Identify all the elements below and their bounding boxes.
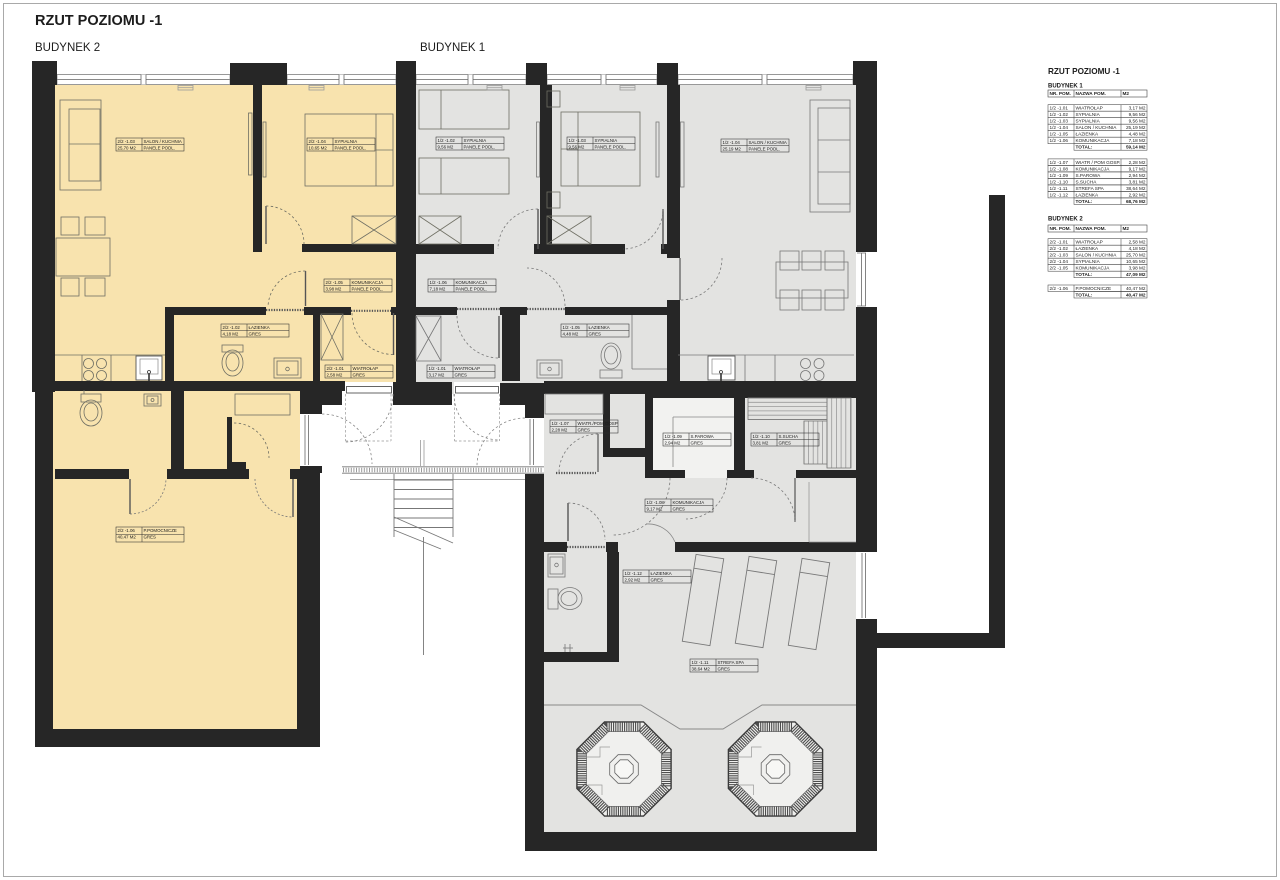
- svg-text:1/2 -1.11: 1/2 -1.11: [692, 660, 710, 665]
- svg-text:WIATR./POM GOSP: WIATR./POM GOSP: [578, 421, 618, 426]
- svg-text:2,94 M2: 2,94 M2: [665, 441, 681, 446]
- svg-text:WIATROŁAP: WIATROŁAP: [353, 366, 379, 371]
- svg-text:SALON / KUCHNIA: SALON / KUCHNIA: [1076, 253, 1118, 258]
- svg-text:2/2 -1.03: 2/2 -1.03: [1050, 253, 1069, 258]
- svg-text:3,17 M2: 3,17 M2: [1129, 106, 1146, 111]
- svg-text:PANELE PODL.: PANELE PODL.: [595, 145, 626, 150]
- svg-text:ŁAZIENKA: ŁAZIENKA: [1076, 246, 1100, 251]
- svg-text:TOTAL:: TOTAL:: [1076, 272, 1093, 277]
- svg-text:S.PAROWA: S.PAROWA: [1076, 173, 1102, 178]
- svg-text:1/2 -1.05: 1/2 -1.05: [563, 325, 581, 330]
- svg-text:1/2 -1.03: 1/2 -1.03: [1050, 119, 1069, 124]
- svg-text:10,65 M2: 10,65 M2: [309, 146, 328, 151]
- svg-text:SYPIALNIA: SYPIALNIA: [1076, 112, 1101, 117]
- svg-text:3,98 M2: 3,98 M2: [1129, 266, 1146, 271]
- svg-text:1/2 -1.01: 1/2 -1.01: [1050, 106, 1069, 111]
- svg-text:40,47 M2: 40,47 M2: [1126, 286, 1146, 291]
- svg-text:2/2 -1.06: 2/2 -1.06: [1050, 286, 1069, 291]
- svg-text:1/2 -1.01: 1/2 -1.01: [429, 366, 447, 371]
- svg-text:SYPIALNIA: SYPIALNIA: [335, 139, 358, 144]
- svg-text:25,70 M2: 25,70 M2: [118, 146, 137, 151]
- svg-text:M2: M2: [1123, 226, 1130, 231]
- svg-text:P.POMOCNICZE: P.POMOCNICZE: [144, 528, 177, 533]
- svg-text:GRES: GRES: [779, 441, 792, 446]
- svg-text:SALON / KUCHNIA: SALON / KUCHNIA: [1076, 125, 1118, 130]
- svg-text:9,56 M2: 9,56 M2: [569, 145, 585, 150]
- svg-text:SYPIALNIA: SYPIALNIA: [464, 138, 487, 143]
- svg-text:KOMUNIKACJA: KOMUNIKACJA: [352, 280, 384, 285]
- svg-text:BUDYNEK 2: BUDYNEK 2: [35, 42, 100, 54]
- svg-text:2/2 -1.05: 2/2 -1.05: [1050, 266, 1069, 271]
- svg-text:2,94 M2: 2,94 M2: [1129, 173, 1146, 178]
- svg-text:GRES: GRES: [589, 332, 602, 337]
- svg-text:WIATROŁAP: WIATROŁAP: [455, 366, 481, 371]
- svg-text:PANELE PODL.: PANELE PODL.: [335, 146, 366, 151]
- svg-text:2/2 -1.01: 2/2 -1.01: [1050, 240, 1069, 245]
- svg-text:GRES: GRES: [578, 428, 591, 433]
- svg-text:GRES: GRES: [353, 373, 366, 378]
- svg-text:40,47 M2: 40,47 M2: [1126, 293, 1146, 298]
- svg-text:1/2 -1.05: 1/2 -1.05: [1050, 132, 1069, 137]
- svg-text:1/2 -1.12: 1/2 -1.12: [1050, 192, 1069, 197]
- svg-text:2,92 M2: 2,92 M2: [1129, 192, 1146, 197]
- svg-text:25,19 M2: 25,19 M2: [723, 147, 742, 152]
- svg-text:PANELE PODL.: PANELE PODL.: [456, 287, 487, 292]
- svg-text:NAZWA POM.: NAZWA POM.: [1076, 91, 1106, 96]
- svg-text:7,18 M2: 7,18 M2: [1129, 138, 1146, 143]
- svg-text:4,48 M2: 4,48 M2: [563, 332, 579, 337]
- svg-text:KOMUNIKACJA: KOMUNIKACJA: [456, 280, 488, 285]
- svg-text:RZUT POZIOMU -1: RZUT POZIOMU -1: [1048, 67, 1120, 76]
- svg-text:2/2 -1.01: 2/2 -1.01: [327, 366, 345, 371]
- svg-text:SALON / KUCHNIA: SALON / KUCHNIA: [144, 139, 182, 144]
- svg-text:GRES: GRES: [651, 578, 664, 583]
- svg-text:SALON / KUCHNIA: SALON / KUCHNIA: [749, 140, 787, 145]
- svg-text:68,76 M2: 68,76 M2: [1126, 199, 1146, 204]
- svg-text:GRES: GRES: [144, 535, 157, 540]
- svg-text:RZUT POZIOMU -1: RZUT POZIOMU -1: [35, 13, 162, 29]
- svg-text:TOTAL:: TOTAL:: [1076, 199, 1093, 204]
- svg-text:BUDYNEK 1: BUDYNEK 1: [420, 42, 485, 54]
- svg-text:40,47 M2: 40,47 M2: [118, 535, 137, 540]
- svg-text:9,56 M2: 9,56 M2: [1129, 119, 1146, 124]
- svg-text:PANELE PODL.: PANELE PODL.: [352, 287, 383, 292]
- svg-text:KOMUNIKACJA: KOMUNIKACJA: [1076, 266, 1111, 271]
- svg-text:10,65 M2: 10,65 M2: [1126, 259, 1146, 264]
- svg-text:9,17 M2: 9,17 M2: [1129, 166, 1146, 171]
- svg-text:1/2 -1.02: 1/2 -1.02: [1050, 112, 1069, 117]
- svg-text:2,58 M2: 2,58 M2: [1129, 240, 1146, 245]
- svg-text:4,48 M2: 4,48 M2: [1129, 132, 1146, 137]
- svg-text:P.POMOCNICZE: P.POMOCNICZE: [1076, 286, 1112, 291]
- svg-text:ŁAZIENKA: ŁAZIENKA: [589, 325, 610, 330]
- svg-text:GRES: GRES: [691, 441, 704, 446]
- svg-text:KOMUNIKACJA: KOMUNIKACJA: [1076, 166, 1111, 171]
- svg-text:1/2 -1.09: 1/2 -1.09: [665, 434, 683, 439]
- svg-text:2/2 -1.02: 2/2 -1.02: [223, 325, 241, 330]
- svg-text:2,92 M2: 2,92 M2: [625, 578, 641, 583]
- svg-text:1/2 -1.11: 1/2 -1.11: [1050, 186, 1069, 191]
- svg-text:TOTAL:: TOTAL:: [1076, 293, 1093, 298]
- svg-text:WIATROŁAP: WIATROŁAP: [1076, 106, 1103, 111]
- svg-text:2,28 M2: 2,28 M2: [552, 428, 568, 433]
- svg-text:2/2 -1.04: 2/2 -1.04: [1050, 259, 1069, 264]
- svg-text:1/2 -1.03: 1/2 -1.03: [569, 138, 587, 143]
- svg-text:59,14 M2: 59,14 M2: [1126, 145, 1146, 150]
- svg-text:38,64 M2: 38,64 M2: [1126, 186, 1146, 191]
- svg-text:KOMUNIKACJA: KOMUNIKACJA: [1076, 138, 1111, 143]
- svg-text:1/2 -1.08: 1/2 -1.08: [647, 500, 665, 505]
- svg-text:BUDYNEK 1: BUDYNEK 1: [1048, 84, 1083, 90]
- svg-text:GRES: GRES: [718, 667, 731, 672]
- svg-text:NAZWA POM.: NAZWA POM.: [1076, 226, 1106, 231]
- svg-text:TOTAL:: TOTAL:: [1076, 145, 1093, 150]
- svg-text:SYPIALNIA: SYPIALNIA: [1076, 119, 1101, 124]
- svg-text:25,19 M2: 25,19 M2: [1126, 125, 1146, 130]
- svg-text:NR. POM.: NR. POM.: [1050, 91, 1071, 96]
- svg-text:WIATR / POM GOSP.: WIATR / POM GOSP.: [1076, 160, 1121, 165]
- svg-text:PANELE PODL.: PANELE PODL.: [144, 146, 175, 151]
- svg-text:2/2 -1.03: 2/2 -1.03: [118, 139, 136, 144]
- svg-text:2,28 M2: 2,28 M2: [1129, 160, 1146, 165]
- svg-text:ŁAZIENKA: ŁAZIENKA: [651, 571, 672, 576]
- svg-text:1/2 -1.07: 1/2 -1.07: [1050, 160, 1069, 165]
- svg-text:1/2 -1.06: 1/2 -1.06: [1050, 138, 1069, 143]
- svg-text:GRES: GRES: [455, 373, 468, 378]
- svg-text:4,18 M2: 4,18 M2: [1129, 246, 1146, 251]
- svg-text:S.SUCHA: S.SUCHA: [1076, 179, 1098, 184]
- svg-text:2/2 -1.04: 2/2 -1.04: [309, 139, 327, 144]
- svg-text:7,18 M2: 7,18 M2: [430, 287, 446, 292]
- svg-text:STREFA SPA: STREFA SPA: [1076, 186, 1105, 191]
- svg-text:3,81 M2: 3,81 M2: [1129, 179, 1146, 184]
- svg-text:9,17 M2: 9,17 M2: [647, 507, 663, 512]
- svg-text:1/2 -1.10: 1/2 -1.10: [1050, 179, 1069, 184]
- svg-text:GRES: GRES: [249, 332, 262, 337]
- svg-text:38,64 M2: 38,64 M2: [692, 667, 711, 672]
- svg-text:3,17 M2: 3,17 M2: [429, 373, 445, 378]
- svg-text:3,81 M2: 3,81 M2: [753, 441, 769, 446]
- svg-text:1/2 -1.04: 1/2 -1.04: [1050, 125, 1069, 130]
- svg-text:2,58 M2: 2,58 M2: [327, 373, 343, 378]
- svg-text:NR. POM.: NR. POM.: [1050, 226, 1071, 231]
- svg-text:S.SUCHA: S.SUCHA: [779, 434, 799, 439]
- svg-text:S.PAROWA: S.PAROWA: [691, 434, 714, 439]
- svg-text:STREFA SPA: STREFA SPA: [718, 660, 745, 665]
- svg-text:4,18 M2: 4,18 M2: [223, 332, 239, 337]
- svg-text:1/2 -1.06: 1/2 -1.06: [430, 280, 448, 285]
- svg-text:GRES: GRES: [673, 507, 686, 512]
- svg-text:1/2 -1.10: 1/2 -1.10: [753, 434, 771, 439]
- svg-text:SYPIALNIA: SYPIALNIA: [1076, 259, 1101, 264]
- svg-text:ŁAZIENKA: ŁAZIENKA: [249, 325, 270, 330]
- svg-text:2/2 -1.05: 2/2 -1.05: [326, 280, 344, 285]
- svg-text:2/2 -1.02: 2/2 -1.02: [1050, 246, 1069, 251]
- svg-text:PANELE PODL.: PANELE PODL.: [464, 145, 495, 150]
- svg-text:2/2 -1.06: 2/2 -1.06: [118, 528, 136, 533]
- svg-text:1/2 -1.04: 1/2 -1.04: [723, 140, 741, 145]
- svg-text:BUDYNEK 2: BUDYNEK 2: [1048, 217, 1083, 223]
- svg-text:3,98 M2: 3,98 M2: [326, 287, 342, 292]
- svg-text:9,56 M2: 9,56 M2: [438, 145, 454, 150]
- svg-text:1/2 -1.07: 1/2 -1.07: [552, 421, 570, 426]
- svg-text:25,70 M2: 25,70 M2: [1126, 253, 1146, 258]
- svg-text:47,09 M2: 47,09 M2: [1126, 272, 1146, 277]
- svg-text:ŁAZIENKA: ŁAZIENKA: [1076, 192, 1100, 197]
- svg-text:WIATROŁAP: WIATROŁAP: [1076, 240, 1103, 245]
- svg-text:1/2 -1.08: 1/2 -1.08: [1050, 166, 1069, 171]
- svg-text:PANELE PODL.: PANELE PODL.: [749, 147, 780, 152]
- svg-text:KOMUNIKACJA: KOMUNIKACJA: [673, 500, 705, 505]
- svg-text:M2: M2: [1123, 91, 1130, 96]
- svg-text:1/2 -1.12: 1/2 -1.12: [625, 571, 643, 576]
- svg-text:1/2 -1.02: 1/2 -1.02: [438, 138, 456, 143]
- svg-text:ŁAZIENKA: ŁAZIENKA: [1076, 132, 1100, 137]
- svg-text:9,56 M2: 9,56 M2: [1129, 112, 1146, 117]
- svg-text:1/2 -1.09: 1/2 -1.09: [1050, 173, 1069, 178]
- svg-text:SYPIALNIA: SYPIALNIA: [595, 138, 618, 143]
